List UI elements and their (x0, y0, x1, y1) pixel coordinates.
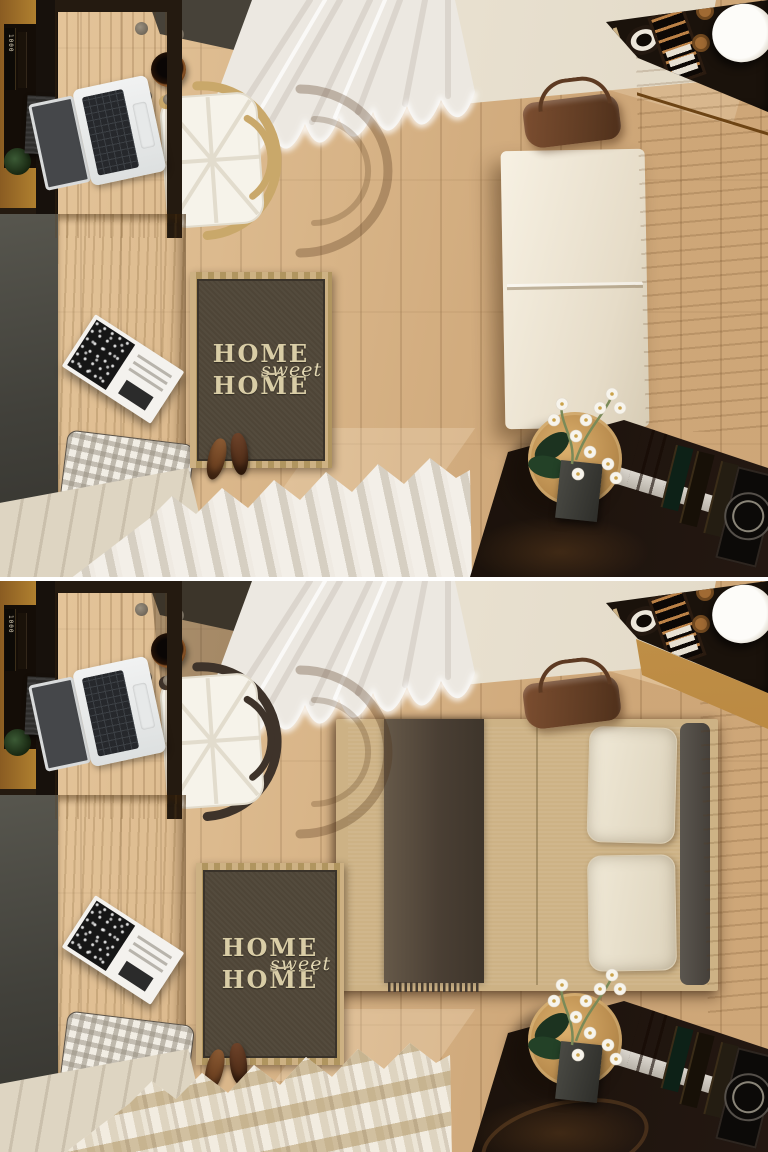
seed-pod (135, 22, 148, 35)
laptop-trackpad (132, 682, 155, 730)
cushion-seam (507, 285, 643, 290)
magazine-photo-small (118, 380, 154, 411)
seed-pod (135, 603, 148, 616)
laptop-keyboard (82, 670, 140, 757)
laptop-trackpad (132, 101, 155, 149)
orchid-flowers (516, 364, 648, 516)
book-spine: 1000 (5, 28, 16, 90)
rug-home-sweet-home: HOME sweet HOME (196, 863, 344, 1065)
side-table (524, 991, 634, 1107)
rug-home-sweet-home: HOME sweet HOME (190, 272, 332, 468)
orchid-flowers (516, 945, 648, 1097)
chair-shadow (300, 89, 388, 253)
chair-shadow (300, 670, 388, 834)
book-spine-label: 1000 (7, 615, 14, 633)
book-spine-label: 1000 (7, 34, 14, 52)
book-spine (18, 32, 27, 88)
rug-flourish (270, 960, 292, 969)
side-table (524, 410, 634, 526)
magazine-photo-small (118, 961, 154, 992)
bed-pillow (586, 726, 677, 844)
book-spine: 1000 (5, 609, 16, 671)
desk-side-panel (167, 581, 182, 819)
desk-side-panel (167, 0, 182, 238)
rug-flourish (261, 366, 283, 375)
wood-decor (692, 615, 710, 633)
laptop-keyboard (82, 89, 140, 176)
wishbone-chair (150, 55, 420, 265)
book-spine (18, 613, 27, 669)
wishbone-chair (150, 636, 420, 846)
panel-bed-closed: 1000 (0, 0, 768, 577)
panel-bed-open: 1000 (0, 581, 768, 1152)
wood-decor (692, 34, 710, 52)
two-panel-room-render: 1000 (0, 0, 768, 1152)
